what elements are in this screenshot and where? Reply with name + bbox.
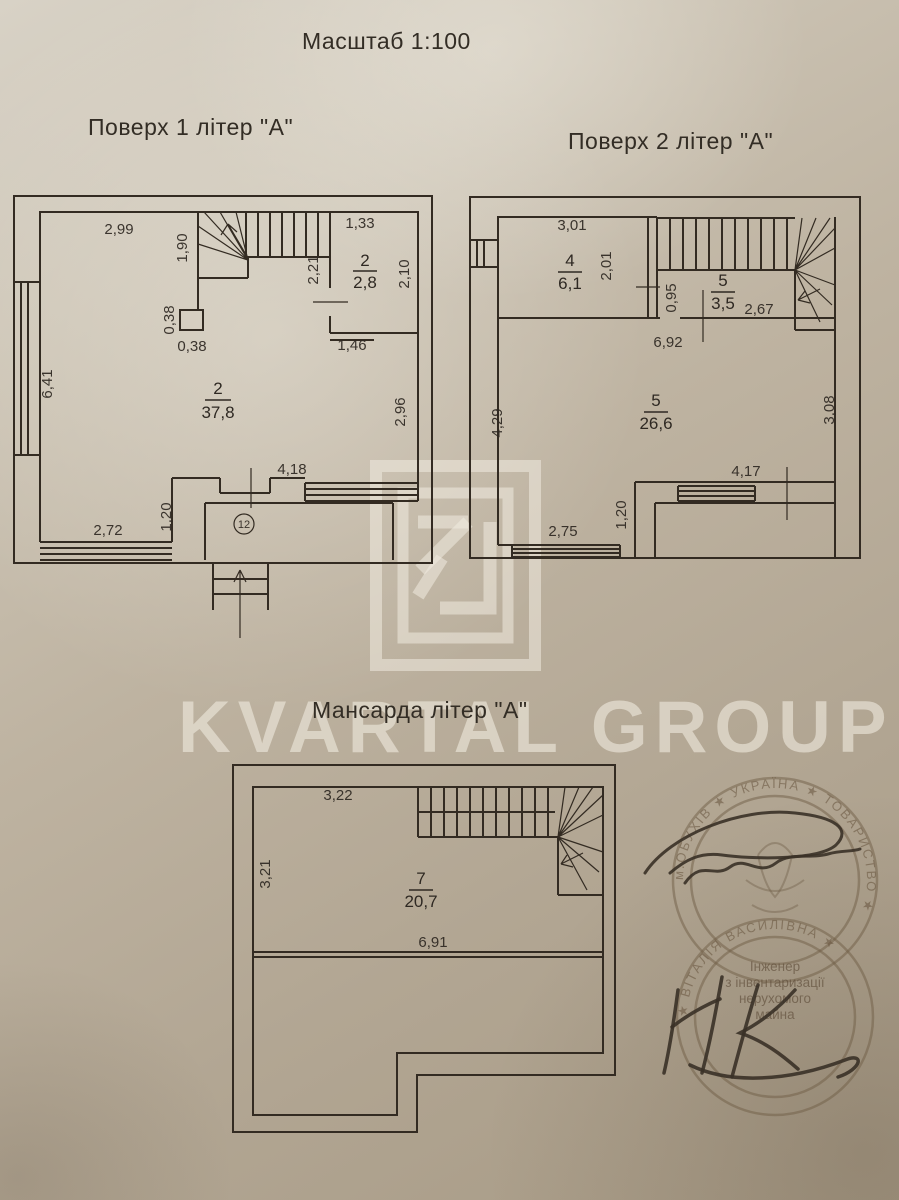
dim-label: 3,08 [821, 395, 838, 424]
dim-label: 4,17 [731, 463, 760, 480]
floor1-plan: 2,99 1,90 1,33 2,21 2 2,8 2,10 0,38 0,38… [8, 190, 438, 645]
room-number: 5 [718, 271, 727, 290]
room-number: 7 [416, 869, 425, 888]
dim-label: 1,90 [174, 233, 191, 262]
mansard-title: Мансарда літер "А" [312, 697, 528, 724]
room-area: 26,6 [639, 414, 672, 433]
floor2-title: Поверх 2 літер "А" [568, 128, 773, 155]
dim-label: 6,91 [418, 934, 447, 951]
dim-label: 1,20 [613, 500, 630, 529]
dim-label: 3,22 [323, 787, 352, 804]
dim-label: 4,29 [489, 408, 506, 437]
dim-label: 0,38 [161, 305, 178, 334]
floor1-title: Поверх 1 літер "А" [88, 114, 293, 141]
room-area: 3,5 [711, 294, 735, 313]
round-seal-bottom: ★ ВІТАЛІЯ ВАСИЛІВНА ★ Інженер з інвентар… [675, 917, 873, 1115]
seal-center-line: нерухомого [739, 991, 811, 1006]
seal-top-emblem [746, 843, 804, 912]
scale-label: Масштаб 1:100 [302, 28, 471, 55]
dim-label: 4,18 [277, 461, 306, 478]
dim-label: 2,75 [548, 523, 577, 540]
dim-label: 6,92 [653, 334, 682, 351]
room-area: 20,7 [404, 892, 437, 911]
dim-label: 2,21 [305, 255, 322, 284]
dim-label: 0,95 [663, 283, 680, 312]
dim-label: 3,21 [257, 859, 274, 888]
dim-label: 1,33 [345, 215, 374, 232]
dim-label: 2,01 [598, 251, 615, 280]
scanned-floorplan-page: KVARTAL GROUP Масштаб 1:100 Поверх 1 літ… [0, 0, 899, 1200]
seal-center-line: Інженер [750, 959, 800, 974]
room-number: 4 [565, 251, 574, 270]
stamps-overlay: м.ОБУХІВ ★ УКРАЇНА ★ ТОВАРИСТВО ★ ★ ВІТА… [630, 755, 899, 1135]
room-number: 2 [213, 379, 222, 398]
dim-label: 0,38 [177, 338, 206, 355]
porch-number: 12 [238, 519, 250, 531]
mansard-plan: 3,22 3,21 7 20,7 6,91 [225, 760, 625, 1145]
floor1-labels: 2,99 1,90 1,33 2,21 2 2,8 2,10 0,38 0,38… [39, 215, 413, 539]
dim-label: 2,96 [392, 397, 409, 426]
room-number: 2 [360, 251, 369, 270]
dim-label: 2,72 [93, 522, 122, 539]
seal-center-line: з інвентаризації [725, 975, 824, 990]
floor1-entrance-steps [213, 563, 268, 638]
floor2-plan: 3,01 4 6,1 2,01 0,95 5 3,5 2,67 6,92 4,2… [460, 190, 870, 575]
dim-label: 6,41 [39, 369, 56, 398]
floor2-walls [470, 197, 860, 558]
room-area: 37,8 [201, 403, 234, 422]
room-area: 2,8 [353, 273, 377, 292]
dim-label: 1,20 [158, 502, 175, 531]
room-area: 6,1 [558, 274, 582, 293]
dim-label: 2,10 [396, 259, 413, 288]
floor2-labels: 3,01 4 6,1 2,01 0,95 5 3,5 2,67 6,92 4,2… [489, 217, 838, 540]
dim-label: 3,01 [557, 217, 586, 234]
dim-label: 2,99 [104, 221, 133, 238]
dim-label: 2,67 [744, 301, 773, 318]
mansard-stairs [418, 787, 603, 895]
room-number: 5 [651, 391, 660, 410]
dim-label: 1,46 [337, 337, 366, 354]
